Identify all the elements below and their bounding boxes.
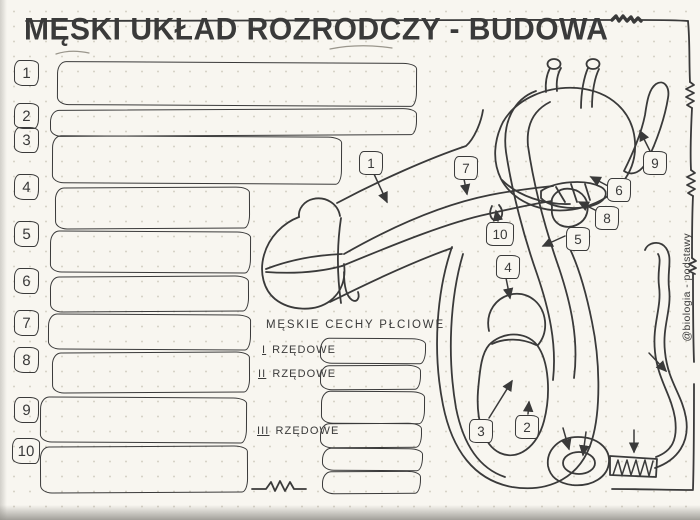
sperm-cell-drawing: [548, 243, 687, 485]
diagram-callout-2: 2: [515, 415, 539, 439]
item-number-6: 6: [14, 268, 39, 294]
page-title: MĘSKI UKŁAD ROZRODCZY - BUDOWA: [24, 12, 608, 48]
trait-answer-box-3b[interactable]: [322, 448, 423, 472]
diagram-callout-7: 7: [454, 156, 478, 180]
item-number-10: 10: [12, 438, 40, 464]
trait-answer-box-3c[interactable]: [322, 471, 421, 495]
trait-answer-box-2a[interactable]: [320, 365, 421, 391]
item-number-8: 8: [14, 347, 39, 373]
item-number-9: 9: [14, 397, 39, 423]
answer-box-4[interactable]: [55, 186, 250, 229]
scan-edge-left: [0, 0, 7, 520]
item-number-5: 5: [14, 221, 39, 247]
traits-section-header: MĘSKIE CECHY PŁCIOWE: [266, 319, 445, 331]
diagram-callout-6: 6: [607, 178, 631, 202]
diagram-callout-3: 3: [469, 419, 493, 443]
answer-box-7[interactable]: [48, 313, 251, 350]
item-number-3: 3: [14, 127, 39, 153]
answer-box-8[interactable]: [52, 351, 250, 393]
trait-answer-box-3a[interactable]: [320, 423, 422, 449]
answer-box-3[interactable]: [52, 135, 342, 185]
answer-box-9[interactable]: [40, 396, 247, 443]
diagram-callout-8: 8: [595, 206, 619, 230]
trait-answer-box-2b[interactable]: [321, 391, 425, 425]
trait-answer-box-1[interactable]: [320, 338, 426, 365]
trait-numeral-3: III: [257, 425, 269, 437]
item-number-2: 2: [14, 103, 39, 129]
diagram-callout-9: 9: [643, 151, 667, 175]
answer-box-6[interactable]: [50, 275, 249, 312]
diagram-callout-5: 5: [566, 227, 590, 251]
answer-box-1[interactable]: [57, 61, 417, 107]
diagram-callout-10: 10: [486, 222, 514, 246]
trait-numeral-2: II: [258, 368, 266, 380]
answer-box-2[interactable]: [50, 108, 417, 137]
answer-box-5[interactable]: [50, 230, 251, 273]
trait-numeral-1: I: [262, 344, 266, 356]
worksheet-page: MĘSKI UKŁAD ROZRODCZY - BUDOWA 1 2 3 4 5…: [0, 0, 700, 520]
item-number-7: 7: [14, 310, 39, 336]
scan-edge-bottom: [0, 505, 700, 520]
answer-box-10[interactable]: [40, 445, 248, 493]
diagram-callout-4: 4: [496, 255, 520, 279]
author-watermark: @biologia - podstawy: [681, 233, 693, 342]
item-number-1: 1: [14, 60, 39, 86]
item-number-4: 4: [14, 174, 39, 200]
diagram-callout-1: 1: [359, 151, 383, 175]
